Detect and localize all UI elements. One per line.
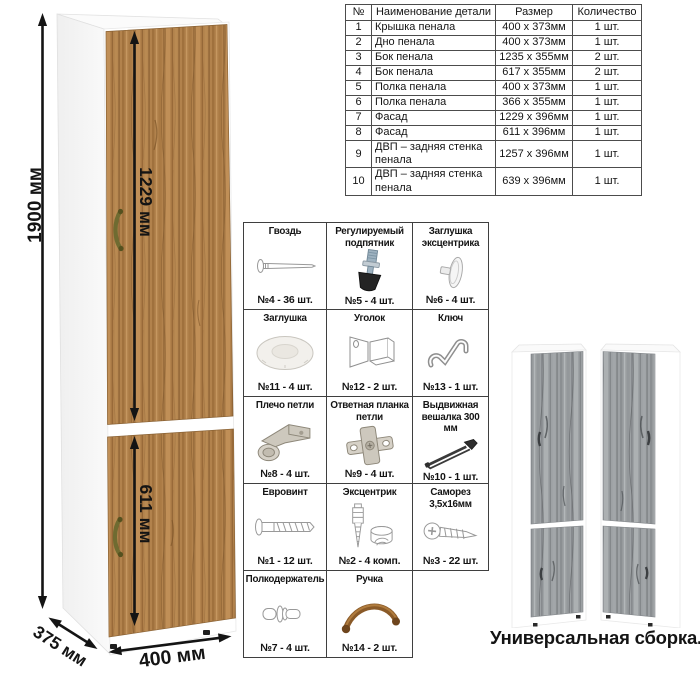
part-num: 5 (346, 81, 372, 96)
hardware-item: Эксцентрик №2 - 4 комп. (327, 484, 413, 571)
hardware-item: Регулируемый подпятник №5 - 4 шт. (327, 223, 413, 310)
hinge-arm-icon (255, 412, 315, 468)
part-size: 366 х 355мм (496, 96, 573, 111)
variant-foot (606, 615, 611, 619)
eccentric-cam-icon (342, 499, 398, 555)
part-qty: 1 шт. (573, 126, 642, 141)
hardware-item-name: Евровинт (262, 486, 307, 499)
top-door-label: 1229 мм (136, 167, 156, 237)
part-name: Крышка пенала (372, 21, 496, 36)
part-size: 639 х 396мм (496, 168, 573, 195)
hardware-item-count: №3 - 22 шт. (423, 555, 478, 568)
part-size: 400 х 373мм (496, 36, 573, 51)
hardware-item-name: Уголок (354, 312, 385, 325)
hardware-item-count: №6 - 4 шт. (426, 294, 476, 307)
part-num: 1 (346, 21, 372, 36)
hardware-row: Заглушка №11 - 4 шт. Уголок №12 - 2 шт. … (244, 310, 489, 397)
variant-foot (576, 615, 581, 619)
column-header-name: Наименование детали (372, 5, 496, 21)
assembly-scheme-page: 1900 мм 1229 мм 611 мм 375 мм 40 (0, 0, 700, 683)
part-name: ДВП – задняя стенка пенала (372, 168, 496, 195)
part-num: 6 (346, 96, 372, 111)
parts-table-row: 6Полка пенала366 х 355мм1 шт. (346, 96, 642, 111)
hardware-item-count: №11 - 4 шт. (258, 381, 313, 394)
hardware-item: Саморез 3,5х16мм №3 - 22 шт. (413, 484, 489, 571)
cap-icon (254, 325, 316, 381)
hardware-item-name: Ответная планка петли (328, 399, 411, 423)
parts-table-row: 4Бок пенала617 х 355мм2 шт. (346, 66, 642, 81)
hardware-item: Полкодержатель №7 - 4 шт. (244, 571, 327, 658)
parts-table-row: 5Полка пенала400 х 373мм1 шт. (346, 81, 642, 96)
hardware-item-count: №9 - 4 шт. (345, 468, 395, 481)
cabinet-illustration: 1900 мм 1229 мм 611 мм 375 мм 40 (0, 0, 245, 683)
hardware-item-count: №10 - 1 шт. (423, 471, 478, 484)
part-num: 2 (346, 36, 372, 51)
hardware-item: Ответная планка петли №9 - 4 шт. (327, 397, 413, 484)
part-name: Дно пенала (372, 36, 496, 51)
variant-door-handle (648, 431, 649, 445)
part-qty: 2 шт. (573, 51, 642, 66)
part-qty: 1 шт. (573, 168, 642, 195)
parts-table-row: 1Крышка пенала400 х 373мм1 шт. (346, 21, 642, 36)
variant-door-handle (541, 568, 542, 580)
variant-cabinet-right (601, 344, 680, 628)
hardware-row: Полкодержатель №7 - 4 шт. Ручка №14 - 2 … (244, 571, 489, 658)
hardware-row: Гвоздь №4 - 36 шт. Регулируемый подпятни… (244, 223, 489, 310)
hardware-item-name: Ручка (356, 573, 383, 586)
nail-icon (254, 238, 316, 294)
hardware-item: Выдвижная вешалка 300 мм №10 - 1 шт. (413, 397, 489, 484)
variant-foot (648, 623, 653, 627)
cam-cap-icon (431, 249, 471, 294)
euro-screw-icon (253, 499, 317, 555)
bottom-door-label: 611 мм (136, 485, 156, 544)
assembly-caption: Универсальная сборка. (484, 628, 700, 648)
parts-table-row: 7Фасад1229 х 396мм1 шт. (346, 111, 642, 126)
shelf-pin-icon (260, 586, 310, 642)
part-qty: 2 шт. (573, 66, 642, 81)
depth-label: 375 мм (30, 621, 91, 670)
variant-door-handle (539, 432, 540, 446)
hardware-item-count: №4 - 36 шт. (257, 294, 312, 307)
hardware-item: Заглушка эксцентрика №6 - 4 шт. (413, 223, 489, 310)
parts-table: № Наименование детали Размер Количество … (345, 4, 642, 196)
part-name: Фасад (372, 111, 496, 126)
part-num: 7 (346, 111, 372, 126)
column-header-qty: Количество (573, 5, 642, 21)
part-size: 1257 х 396мм (496, 141, 573, 168)
variant-top-door (603, 352, 655, 525)
variant-bottom-door (531, 526, 583, 617)
hardware-item-count: №1 - 12 шт. (257, 555, 312, 568)
part-num: 4 (346, 66, 372, 81)
part-qty: 1 шт. (573, 36, 642, 51)
part-qty: 1 шт. (573, 111, 642, 126)
variant-cabinet-left (512, 344, 586, 628)
hardware-item: Заглушка №11 - 4 шт. (244, 310, 327, 397)
hardware-item-name: Заглушка эксцентрика (414, 225, 487, 249)
part-name: Полка пенала (372, 96, 496, 111)
hardware-item-name: Ключ (438, 312, 463, 325)
variant-door-handle (646, 567, 647, 579)
hardware-item: Уголок №12 - 2 шт. (327, 310, 413, 397)
hardware-empty-cell (413, 571, 489, 658)
part-qty: 1 шт. (573, 81, 642, 96)
hardware-item-count: №14 - 2 шт. (342, 642, 397, 655)
cabinet-bottom-door (108, 429, 236, 637)
parts-table-row: 10ДВП – задняя стенка пенала639 х 396мм1… (346, 168, 642, 195)
part-name: Бок пенала (372, 66, 496, 81)
handle-icon (338, 586, 402, 642)
part-size: 400 х 373мм (496, 21, 573, 36)
self-tapping-screw-icon (422, 510, 480, 555)
part-num: 3 (346, 51, 372, 66)
hardware-item-name: Гвоздь (269, 225, 302, 238)
part-name: Полка пенала (372, 81, 496, 96)
part-num: 10 (346, 168, 372, 195)
hardware-item-count: №12 - 2 шт. (342, 381, 397, 394)
adjustable-foot-icon (348, 249, 392, 295)
hardware-item-name: Заглушка (263, 312, 306, 325)
variant-cabinets (498, 336, 700, 628)
hardware-item-count: №7 - 4 шт. (260, 642, 310, 655)
column-header-size: Размер (496, 5, 573, 21)
hardware-item-name: Эксцентрик (343, 486, 397, 499)
hardware-item-name: Саморез 3,5х16мм (414, 486, 487, 510)
hardware-row: Евровинт №1 - 12 шт. Эксцентрик №2 - 4 к… (244, 484, 489, 571)
parts-table-row: 8Фасад611 х 396мм1 шт. (346, 126, 642, 141)
part-size: 1229 х 396мм (496, 111, 573, 126)
part-size: 611 х 396мм (496, 126, 573, 141)
hardware-item-name: Регулируемый подпятник (328, 225, 411, 249)
part-size: 1235 х 355мм (496, 51, 573, 66)
dimension-height: 1900 мм (25, 13, 47, 609)
hardware-item-count: №2 - 4 комп. (339, 555, 401, 568)
cabinet-top-door (106, 25, 233, 425)
hardware-item-count: №13 - 1 шт. (423, 381, 478, 394)
hardware-item-count: №5 - 4 шт. (345, 295, 395, 308)
hinge-plate-icon (343, 423, 397, 468)
part-num: 9 (346, 141, 372, 168)
hardware-item-name: Выдвижная вешалка 300 мм (414, 399, 487, 435)
parts-table-header: № Наименование детали Размер Количество (346, 5, 642, 21)
hardware-item: Ключ №13 - 1 шт. (413, 310, 489, 397)
corner-bracket-icon (342, 325, 398, 381)
cabinet-side-panel (57, 14, 110, 654)
part-num: 8 (346, 126, 372, 141)
hardware-item-name: Полкодержатель (246, 573, 325, 586)
cabinet-foot (110, 644, 117, 649)
height-label: 1900 мм (25, 167, 46, 243)
pullout-hanger-icon (420, 435, 482, 471)
part-qty: 1 шт. (573, 96, 642, 111)
cabinet (57, 14, 236, 655)
column-header-num: № (346, 5, 372, 21)
part-size: 617 х 355мм (496, 66, 573, 81)
hardware-item: Ручка №14 - 2 шт. (327, 571, 413, 658)
hardware-row: Плечо петли №8 - 4 шт. Ответная планка п… (244, 397, 489, 484)
hardware-item-name: Плечо петли (256, 399, 314, 412)
part-name: ДВП – задняя стенка пенала (372, 141, 496, 168)
hardware-table: Гвоздь №4 - 36 шт. Регулируемый подпятни… (243, 222, 489, 658)
part-qty: 1 шт. (573, 21, 642, 36)
hardware-item-count: №8 - 4 шт. (260, 468, 310, 481)
hardware-item: Гвоздь №4 - 36 шт. (244, 223, 327, 310)
parts-table-row: 9ДВП – задняя стенка пенала1257 х 396мм1… (346, 141, 642, 168)
part-name: Бок пенала (372, 51, 496, 66)
part-qty: 1 шт. (573, 141, 642, 168)
hardware-item: Евровинт №1 - 12 шт. (244, 484, 327, 571)
hardware-item: Плечо петли №8 - 4 шт. (244, 397, 327, 484)
variant-foot (533, 623, 538, 627)
hex-key-icon (424, 325, 478, 381)
part-size: 400 х 373мм (496, 81, 573, 96)
parts-table-row: 2Дно пенала400 х 373мм1 шт. (346, 36, 642, 51)
part-name: Фасад (372, 126, 496, 141)
cabinet-foot (203, 630, 210, 635)
parts-table-row: 3Бок пенала1235 х 355мм2 шт. (346, 51, 642, 66)
